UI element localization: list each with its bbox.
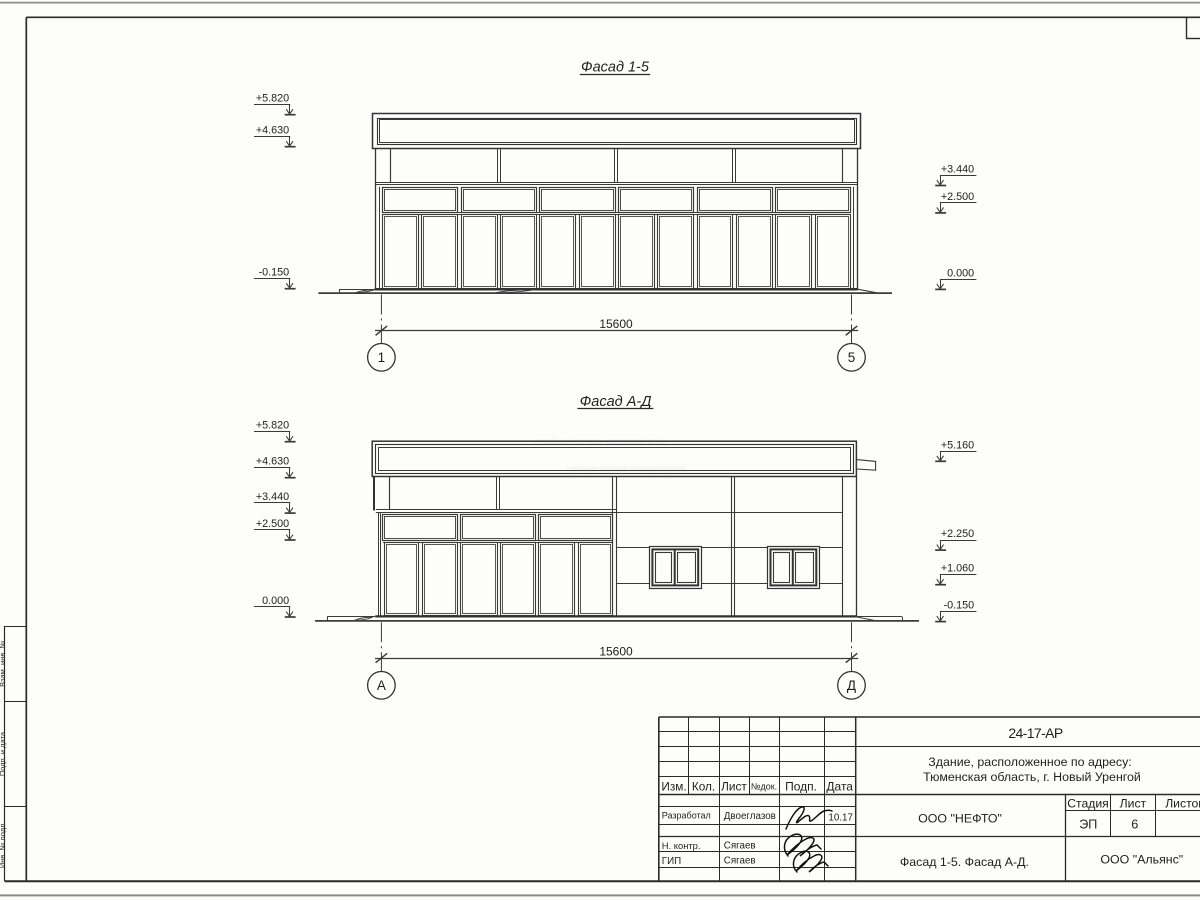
svg-text:5: 5 xyxy=(848,350,856,365)
svg-text:Лист: Лист xyxy=(721,780,747,794)
svg-text:+3.440: +3.440 xyxy=(256,491,289,503)
svg-text:24-17-АР: 24-17-АР xyxy=(1008,725,1063,741)
svg-text:10.17: 10.17 xyxy=(828,812,853,823)
svg-text:+1.060: +1.060 xyxy=(941,563,974,575)
svg-text:Д: Д xyxy=(847,678,856,693)
svg-text:№док.: №док. xyxy=(751,782,777,792)
svg-text:Здание, расположенное по адрес: Здание, расположенное по адресу: xyxy=(928,755,1131,769)
svg-text:Инв. № подл.: Инв. № подл. xyxy=(0,821,7,868)
svg-text:Разработал: Разработал xyxy=(662,811,711,821)
svg-text:Фасад 1-5. Фасад А-Д.: Фасад 1-5. Фасад А-Д. xyxy=(900,855,1029,869)
svg-text:Н. контр.: Н. контр. xyxy=(662,840,701,851)
svg-text:Фасад 1-5: Фасад 1-5 xyxy=(581,60,650,76)
svg-text:Изм.: Изм. xyxy=(661,780,686,794)
svg-text:Сягаев: Сягаев xyxy=(724,855,756,866)
svg-text:+5.160: +5.160 xyxy=(941,439,974,451)
svg-text:+4.630: +4.630 xyxy=(256,456,289,468)
svg-text:0.000: 0.000 xyxy=(262,595,289,607)
svg-text:Взам. инв. №: Взам. инв. № xyxy=(0,640,7,686)
svg-text:15600: 15600 xyxy=(599,317,633,331)
svg-text:Тюменская область, г. Новый Ур: Тюменская область, г. Новый Уренгой xyxy=(923,770,1141,784)
svg-text:Фасад А-Д: Фасад А-Д xyxy=(580,394,652,410)
svg-text:+3.440: +3.440 xyxy=(941,164,974,176)
svg-text:Дата: Дата xyxy=(826,780,853,794)
svg-text:ООО "НЕФТО": ООО "НЕФТО" xyxy=(918,811,1002,825)
svg-text:Подп. и дата: Подп. и дата xyxy=(0,731,7,776)
svg-text:+4.630: +4.630 xyxy=(256,125,289,137)
svg-text:Двоеглазов: Двоеглазов xyxy=(724,811,776,822)
svg-text:стройэкспертиза-нормоконтроль: стройэкспертиза-нормоконтроль xyxy=(566,465,687,474)
svg-text:ГИП: ГИП xyxy=(662,856,681,867)
svg-text:0.000: 0.000 xyxy=(947,267,974,279)
svg-text:Стадия: Стадия xyxy=(1067,796,1109,810)
svg-text:-0.150: -0.150 xyxy=(259,267,290,279)
svg-text:Подп.: Подп. xyxy=(785,780,817,794)
svg-text:15600: 15600 xyxy=(599,644,633,658)
svg-text:ЭП: ЭП xyxy=(1079,818,1097,832)
svg-text:-0.150: -0.150 xyxy=(944,600,975,612)
svg-text:1: 1 xyxy=(378,350,386,365)
svg-text:ООО "Альянс": ООО "Альянс" xyxy=(1100,852,1183,866)
svg-text:+2.500: +2.500 xyxy=(941,191,974,203)
svg-text:+2.250: +2.250 xyxy=(941,528,974,540)
svg-text:+5.820: +5.820 xyxy=(256,420,289,432)
svg-text:+2.500: +2.500 xyxy=(256,518,289,530)
svg-text:6: 6 xyxy=(1131,818,1138,832)
svg-text:Листов: Листов xyxy=(1165,796,1200,810)
svg-text:А: А xyxy=(377,678,386,693)
svg-text:Кол.: Кол. xyxy=(692,780,715,794)
svg-text:+5.820: +5.820 xyxy=(256,93,289,105)
svg-text:Сягаев: Сягаев xyxy=(724,841,756,852)
svg-text:Лист: Лист xyxy=(1120,796,1147,810)
